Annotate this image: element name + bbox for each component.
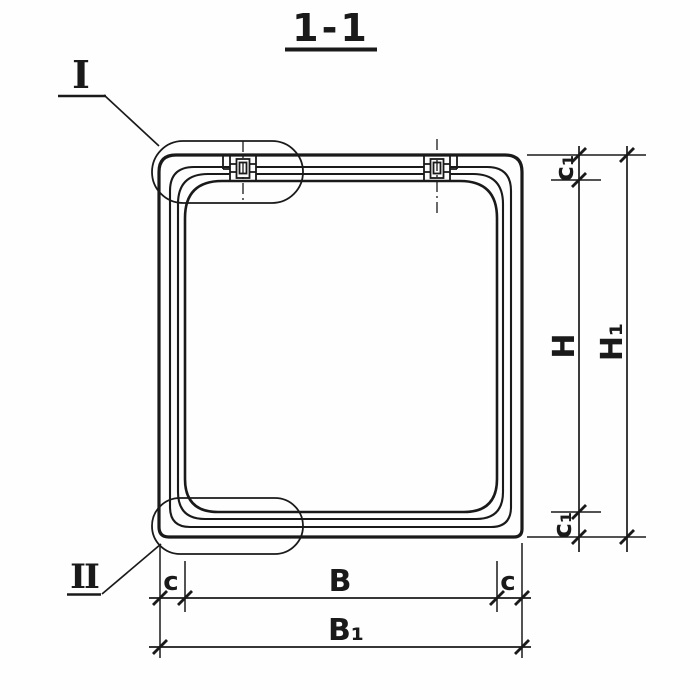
detail-label-II: II <box>70 557 99 597</box>
outer-contour <box>159 155 522 537</box>
opening-contour <box>185 181 497 512</box>
detail-label-I: I <box>72 52 90 97</box>
right-dimensions: c₁ H c₁ H₁ <box>527 146 646 552</box>
detail-boundary-I <box>152 141 303 203</box>
bottom-dimensions: c B c B₁ <box>149 543 531 658</box>
dim-label-H: H <box>547 333 582 358</box>
middle-contour-2 <box>178 174 503 519</box>
dim-label-c-right: c <box>500 567 515 597</box>
dim-label-H1: H₁ <box>595 323 630 361</box>
detail-callout-I: I <box>58 52 159 146</box>
dim-label-c1-top: c₁ <box>550 155 580 182</box>
dim-label-B: B <box>329 564 352 599</box>
section-title: 1-1 <box>292 6 370 50</box>
top-joint-left <box>223 141 256 203</box>
dim-label-c-left: c <box>163 567 178 597</box>
detail-callout-II: II <box>67 544 161 597</box>
technical-drawing: 1-1 I II <box>0 0 700 700</box>
top-joint-right <box>424 139 457 213</box>
box-section <box>159 155 522 537</box>
drawing-sheet: 1-1 I II <box>0 0 700 700</box>
leader-line-I <box>104 95 159 146</box>
dim-label-c1-bottom: c₁ <box>548 512 578 539</box>
leader-line-II <box>102 544 161 594</box>
middle-contour-1 <box>170 167 511 527</box>
dim-label-B1: B₁ <box>328 613 364 648</box>
